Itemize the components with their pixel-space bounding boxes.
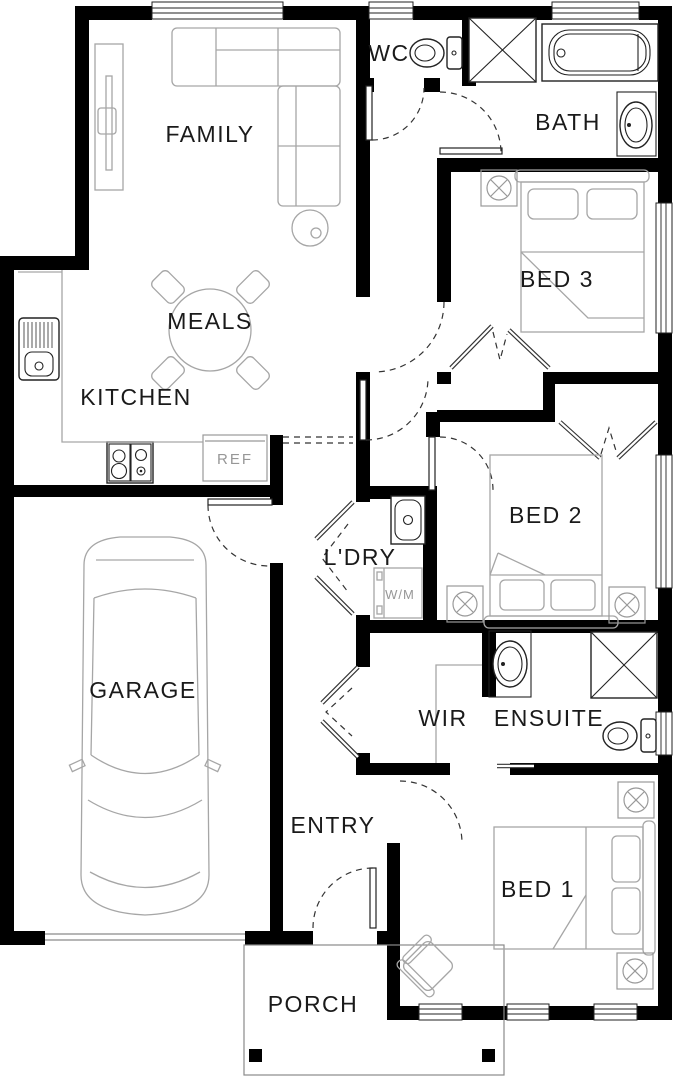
window	[552, 2, 639, 19]
door-swing-bed1	[400, 766, 534, 843]
downlight-icon	[609, 587, 645, 623]
shower-icon-ensuite	[591, 632, 657, 698]
sink-icon-kitchen	[19, 318, 59, 380]
room-label-wir: WIR	[418, 705, 467, 731]
window	[656, 203, 672, 333]
car-icon	[69, 537, 220, 915]
room-label-bath: BATH	[535, 109, 601, 135]
floor-plan-canvas: FAMILY WC BATH BED 3 MEALS KITCHEN L'DRY…	[0, 0, 678, 1079]
toilet-icon-ensuite	[603, 719, 656, 752]
window	[594, 1004, 637, 1020]
window	[656, 712, 672, 755]
room-label-porch: PORCH	[268, 991, 359, 1017]
bed-icon-bed2	[484, 455, 618, 628]
room-label-entry: ENTRY	[290, 812, 375, 838]
room-label-kitchen: KITCHEN	[80, 384, 191, 410]
window	[507, 1004, 549, 1020]
tv-unit-icon	[95, 44, 123, 190]
washing-machine-label: W/M	[385, 587, 415, 602]
shower-icon	[469, 18, 536, 82]
porch-post	[482, 1049, 495, 1062]
window	[152, 2, 283, 19]
armchair-icon	[395, 933, 460, 998]
window	[419, 1004, 462, 1020]
downlight-icon	[618, 782, 654, 818]
bifold-door-wir	[322, 667, 358, 757]
fridge-label: REF	[217, 451, 253, 468]
door-swing-bath	[440, 92, 502, 154]
window	[369, 2, 413, 19]
door-swing-bed3	[374, 302, 444, 372]
door-swing-front	[313, 868, 376, 928]
room-label-bed1: BED 1	[501, 876, 575, 902]
room-label-meals: MEALS	[167, 308, 252, 334]
downlight-icons	[447, 170, 654, 989]
room-label-garage: GARAGE	[89, 677, 196, 703]
bed-icon-bed3	[515, 170, 649, 332]
bathtub-icon	[542, 24, 658, 81]
room-label-ldry: L'DRY	[324, 544, 397, 570]
room-label-family: FAMILY	[165, 121, 254, 147]
basin-icon-bath	[617, 92, 656, 156]
room-label-bed2: BED 2	[509, 502, 583, 528]
door-swing-bed2	[429, 437, 493, 490]
door-swing-wc	[366, 86, 424, 140]
room-label-ensuite: ENSUITE	[494, 705, 604, 731]
bifold-door-robe-bed2	[560, 422, 656, 458]
porch-post	[249, 1049, 262, 1062]
downlight-icon	[617, 953, 653, 989]
laundry-tub-icon	[391, 496, 425, 544]
downlight-icon	[481, 170, 517, 206]
room-label-wc: WC	[368, 40, 409, 66]
downlight-icon	[447, 586, 483, 622]
garage-door	[45, 934, 245, 940]
opening-dashed-kitchen	[283, 437, 353, 443]
window	[656, 455, 672, 588]
toilet-icon	[410, 37, 462, 69]
door-swing-garage	[208, 499, 272, 566]
door-swing-hall	[360, 378, 428, 440]
room-label-bed3: BED 3	[520, 266, 594, 292]
room-labels: FAMILY WC BATH BED 3 MEALS KITCHEN L'DRY…	[80, 40, 604, 1017]
cooktop-icon	[107, 442, 153, 483]
floor-plan: FAMILY WC BATH BED 3 MEALS KITCHEN L'DRY…	[0, 0, 678, 1079]
